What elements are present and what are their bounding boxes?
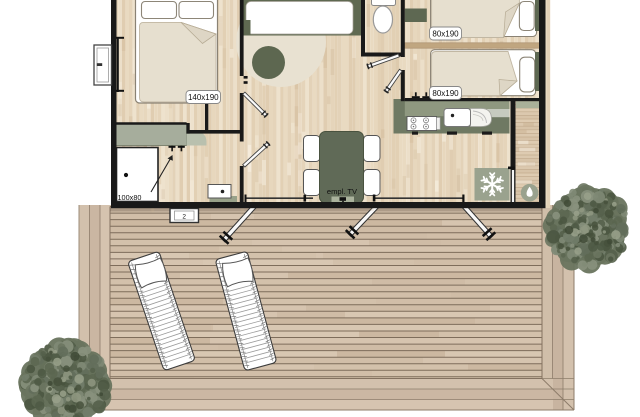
svg-text:80x190: 80x190 — [432, 89, 459, 98]
svg-text:2: 2 — [182, 213, 186, 220]
svg-text:140x190: 140x190 — [188, 93, 219, 102]
svg-text:100x80: 100x80 — [118, 193, 142, 202]
svg-text:80x190: 80x190 — [432, 30, 459, 39]
svg-text:empl. TV: empl. TV — [327, 187, 358, 196]
